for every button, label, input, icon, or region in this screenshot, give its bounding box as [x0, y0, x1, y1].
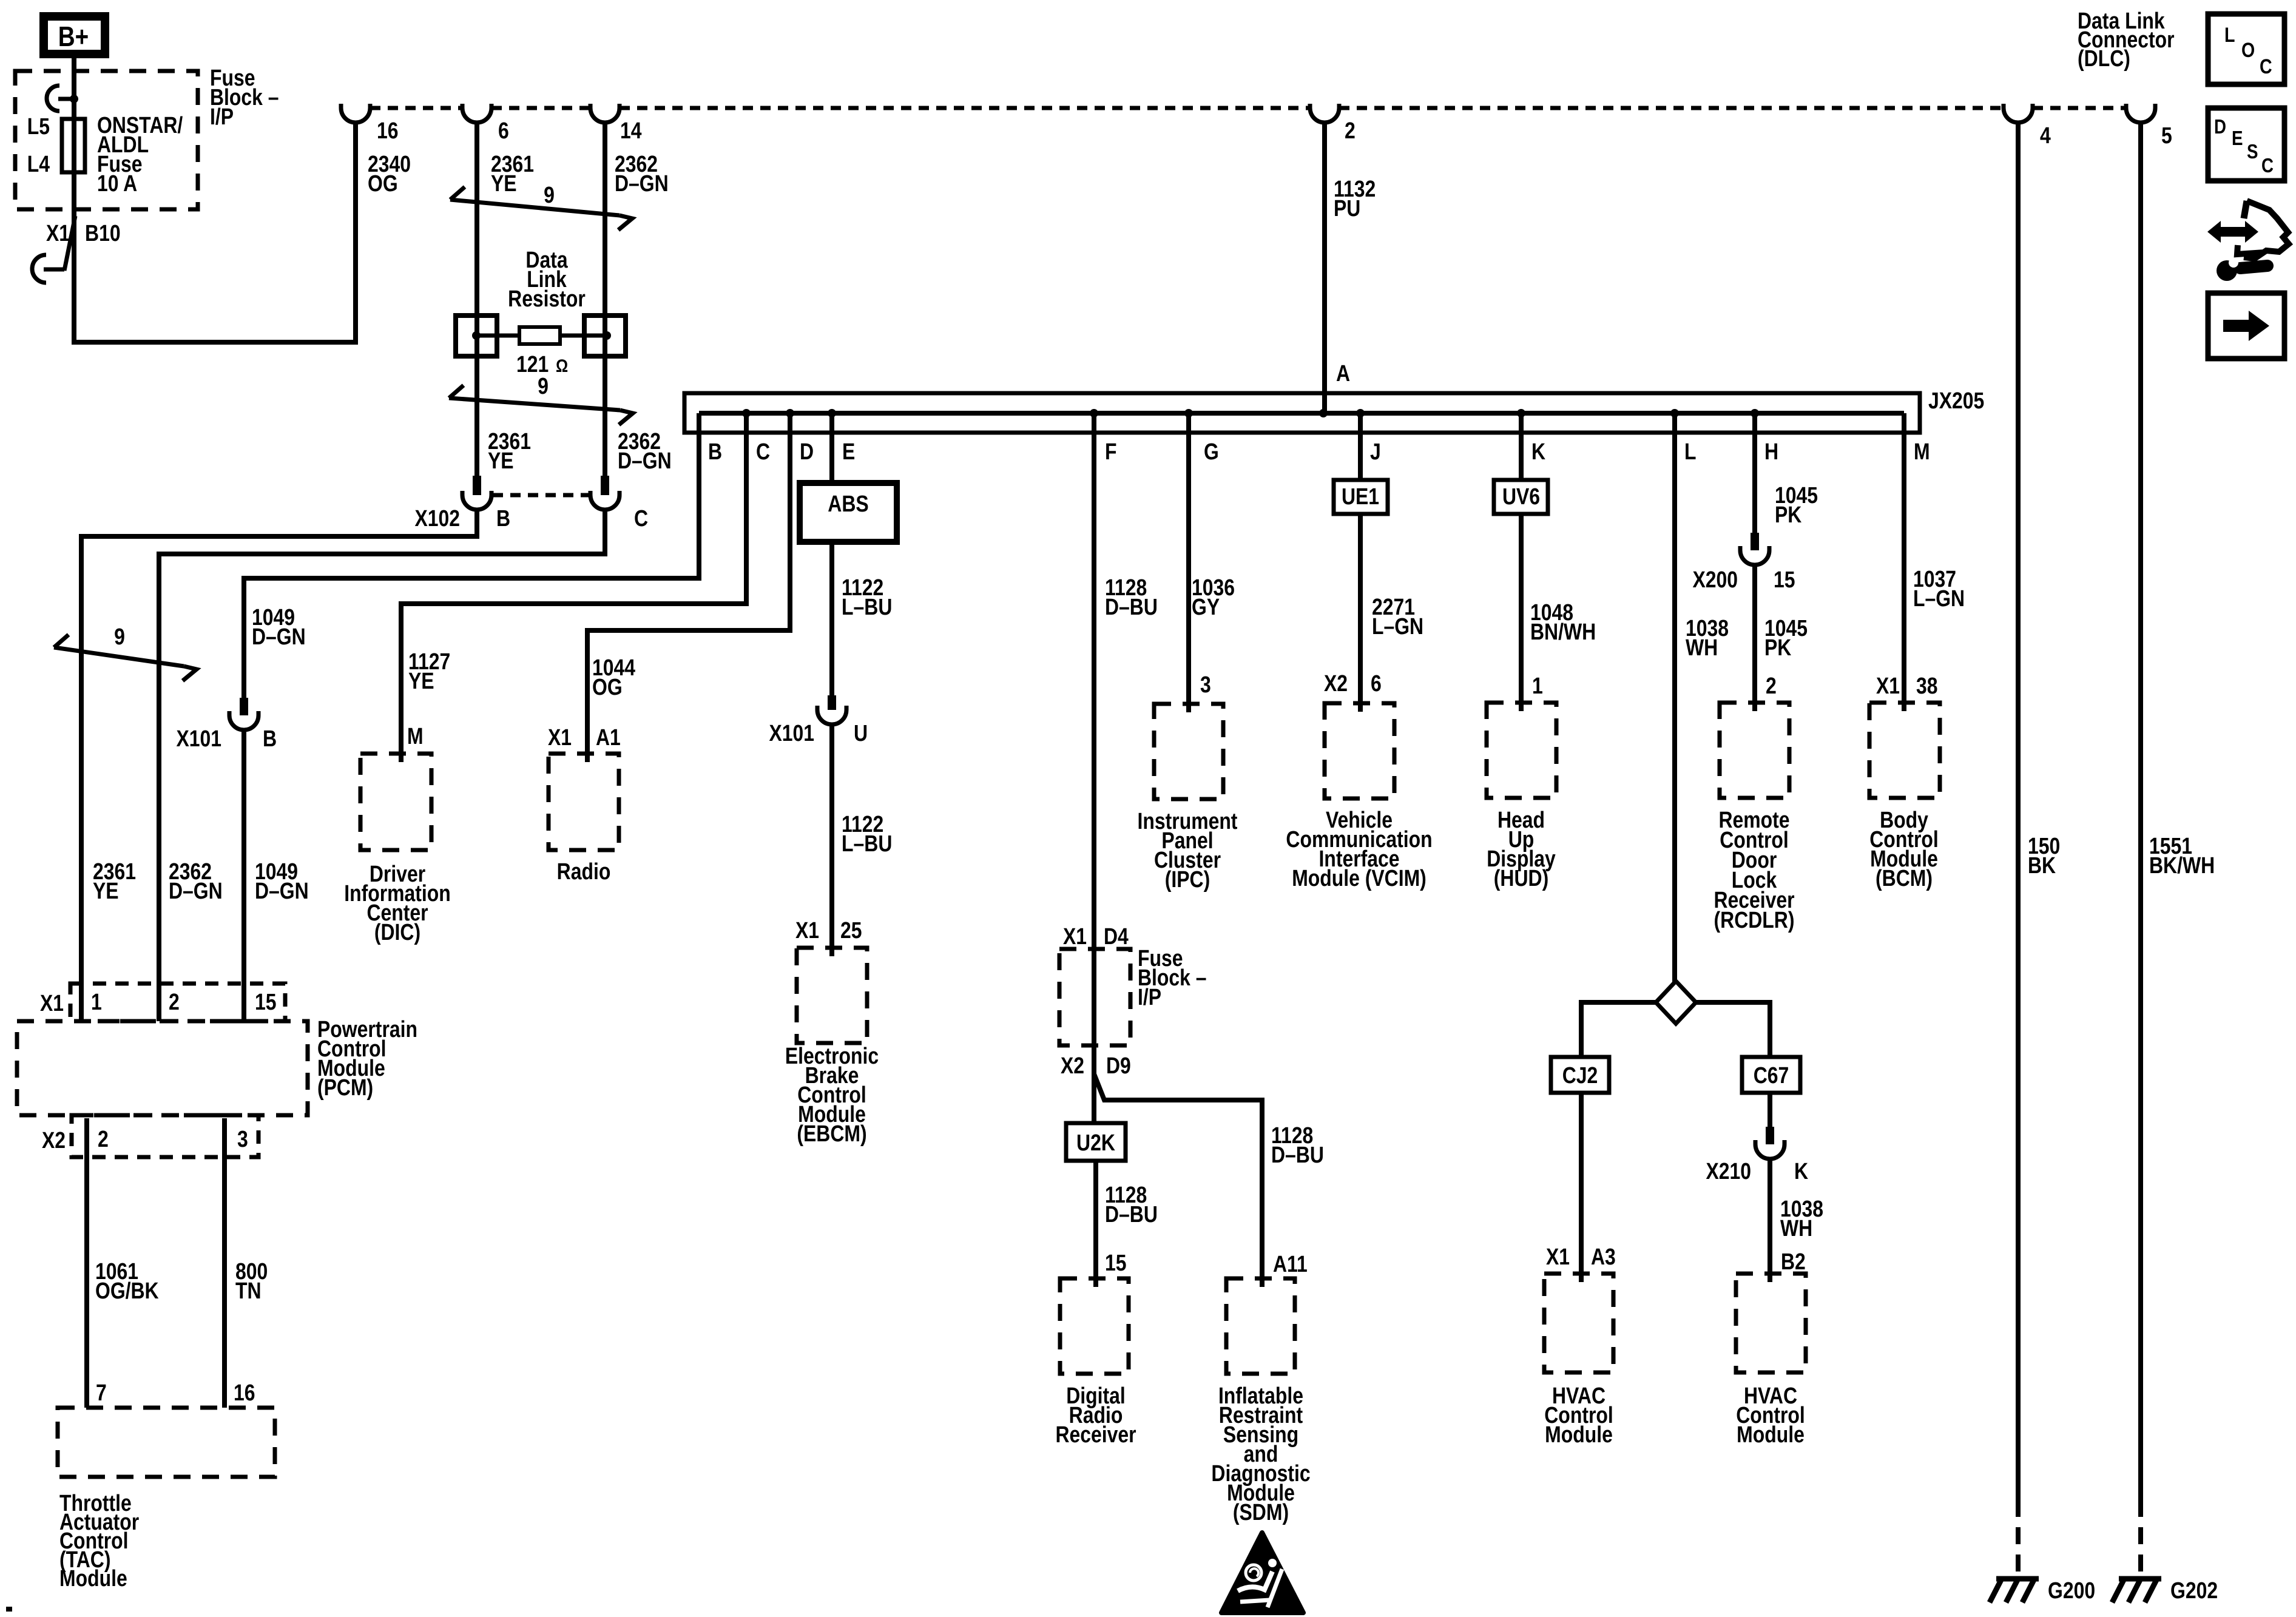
svg-text:D4: D4: [1104, 924, 1129, 950]
svg-text:B+: B+: [58, 21, 89, 52]
svg-text:(EBCM): (EBCM): [797, 1121, 866, 1147]
svg-text:L–GN: L–GN: [1913, 586, 1965, 612]
svg-text:A3: A3: [1591, 1244, 1616, 1270]
svg-text:PK: PK: [1775, 502, 1802, 528]
svg-text:Radio: Radio: [557, 859, 611, 885]
svg-text:X1: X1: [795, 918, 819, 944]
svg-text:9: 9: [114, 624, 125, 650]
svg-text:J: J: [1370, 439, 1381, 465]
svg-text:X101: X101: [177, 726, 222, 752]
svg-text:16: 16: [377, 118, 399, 144]
svg-text:L–BU: L–BU: [842, 595, 892, 620]
svg-text:B10: B10: [85, 221, 121, 246]
svg-text:C: C: [756, 439, 770, 465]
svg-text:D–BU: D–BU: [1271, 1143, 1324, 1168]
svg-text:OG: OG: [592, 675, 623, 700]
svg-text:15: 15: [1105, 1251, 1127, 1276]
svg-text:Module: Module: [1545, 1422, 1613, 1448]
svg-text:1: 1: [91, 990, 102, 1015]
svg-text:C67: C67: [1754, 1063, 1789, 1089]
svg-text:(DIC): (DIC): [374, 920, 420, 945]
svg-text:4: 4: [2040, 123, 2051, 149]
svg-text:(SDM): (SDM): [1233, 1500, 1289, 1525]
svg-text:(IPC): (IPC): [1165, 867, 1210, 893]
svg-text:25: 25: [840, 918, 862, 944]
svg-text:X2: X2: [1324, 671, 1348, 697]
svg-text:15: 15: [255, 990, 277, 1015]
svg-text:38: 38: [1916, 673, 1938, 699]
svg-text:(PCM): (PCM): [317, 1075, 373, 1101]
svg-text:9: 9: [544, 183, 555, 208]
svg-text:(RCDLR): (RCDLR): [1714, 908, 1795, 933]
svg-text:7: 7: [96, 1380, 107, 1406]
svg-text:B2: B2: [1781, 1249, 1806, 1275]
svg-text:D–GN: D–GN: [255, 879, 309, 904]
svg-text:Receiver: Receiver: [1055, 1422, 1136, 1448]
svg-text:D–BU: D–BU: [1105, 1202, 1158, 1227]
svg-text:X2: X2: [1061, 1053, 1084, 1079]
svg-text:PU: PU: [1334, 196, 1360, 221]
svg-text:2: 2: [169, 990, 180, 1015]
svg-text:D9: D9: [1106, 1053, 1131, 1079]
svg-text:U: U: [854, 721, 868, 746]
svg-text:YE: YE: [93, 879, 119, 904]
svg-text:L: L: [1684, 439, 1697, 465]
svg-text:L–GN: L–GN: [1372, 614, 1423, 640]
svg-text:X101: X101: [769, 721, 815, 746]
svg-text:D: D: [800, 439, 814, 465]
svg-text:Module: Module: [1737, 1422, 1805, 1448]
svg-text:2: 2: [1766, 673, 1777, 699]
svg-text:B: B: [708, 439, 722, 465]
svg-text:I/P: I/P: [1138, 985, 1161, 1010]
svg-text:C: C: [2260, 55, 2272, 78]
svg-text:YE: YE: [488, 448, 514, 474]
svg-text:TN: TN: [235, 1278, 262, 1304]
svg-text:K: K: [1794, 1159, 1809, 1184]
svg-text:S: S: [2247, 140, 2258, 163]
svg-text:BK: BK: [2028, 853, 2056, 879]
svg-text:X1: X1: [548, 725, 572, 751]
svg-text:Resistor: Resistor: [508, 286, 586, 312]
svg-text:10 A: 10 A: [97, 171, 137, 197]
svg-text:U2K: U2K: [1076, 1130, 1115, 1156]
svg-text:M: M: [1914, 439, 1930, 465]
svg-text:L–BU: L–BU: [842, 831, 892, 857]
svg-text:5: 5: [2161, 123, 2172, 149]
svg-text:X1: X1: [40, 991, 64, 1016]
svg-text:16: 16: [234, 1380, 255, 1406]
svg-text:H: H: [1764, 439, 1778, 465]
svg-text:K: K: [1531, 439, 1546, 465]
svg-text:F: F: [1105, 439, 1117, 465]
svg-text:3: 3: [237, 1127, 248, 1152]
svg-text:A: A: [1336, 361, 1350, 387]
svg-text:Ω: Ω: [556, 356, 568, 376]
svg-text:6: 6: [1371, 671, 1382, 697]
svg-text:BK/WH: BK/WH: [2149, 853, 2215, 879]
svg-text:BN/WH: BN/WH: [1530, 619, 1596, 645]
svg-text:GY: GY: [1192, 595, 1220, 620]
svg-text:D: D: [2214, 115, 2226, 138]
svg-text:X2: X2: [42, 1128, 66, 1153]
svg-text:D–GN: D–GN: [169, 879, 223, 904]
svg-text:B: B: [496, 506, 510, 532]
svg-text:I/P: I/P: [210, 104, 234, 130]
svg-text:OG/BK: OG/BK: [95, 1278, 159, 1304]
svg-text:O: O: [2241, 39, 2255, 62]
svg-text:UE1: UE1: [1342, 484, 1379, 510]
svg-text:YE: YE: [408, 669, 434, 694]
svg-text:A1: A1: [596, 725, 621, 751]
svg-text:D–BU: D–BU: [1105, 595, 1158, 620]
svg-text:PK: PK: [1764, 635, 1792, 661]
svg-text:A11: A11: [1273, 1252, 1308, 1277]
svg-text:C: C: [2261, 154, 2274, 177]
svg-text:UV6: UV6: [1502, 484, 1540, 510]
svg-text:6: 6: [498, 118, 509, 144]
svg-text:B: B: [263, 726, 277, 752]
svg-text:X200: X200: [1693, 567, 1738, 593]
svg-text:E: E: [842, 439, 855, 465]
svg-text:L5: L5: [27, 114, 50, 140]
svg-text:D–GN: D–GN: [615, 171, 669, 197]
svg-text:Module: Module: [59, 1566, 127, 1592]
svg-text:X1: X1: [46, 221, 70, 246]
svg-text:G200: G200: [2048, 1578, 2095, 1604]
svg-text:C: C: [634, 506, 648, 532]
svg-text:CJ2: CJ2: [1562, 1063, 1598, 1089]
svg-text:ABS: ABS: [828, 491, 868, 517]
svg-text:D–GN: D–GN: [252, 624, 306, 650]
svg-text:9: 9: [538, 374, 549, 399]
svg-text:1: 1: [1532, 673, 1543, 699]
svg-text:Module (VCIM): Module (VCIM): [1292, 866, 1427, 891]
svg-text:(DLC): (DLC): [2078, 46, 2130, 72]
svg-text:WH: WH: [1686, 635, 1718, 661]
svg-text:2: 2: [1345, 118, 1356, 144]
svg-text:15: 15: [1774, 567, 1795, 593]
svg-text:WH: WH: [1780, 1216, 1812, 1241]
svg-text:X102: X102: [415, 506, 461, 532]
svg-text:E: E: [2232, 127, 2243, 149]
svg-text:OG: OG: [368, 171, 398, 197]
svg-text:14: 14: [620, 118, 642, 144]
svg-text:L: L: [2224, 24, 2235, 47]
svg-text:G202: G202: [2170, 1578, 2218, 1604]
svg-text:X1: X1: [1876, 673, 1900, 699]
svg-text:X1: X1: [1063, 924, 1087, 950]
svg-text:2: 2: [98, 1127, 109, 1152]
svg-text:X210: X210: [1706, 1159, 1752, 1184]
svg-text:G: G: [1204, 439, 1219, 465]
svg-text:M: M: [407, 724, 424, 749]
svg-text:3: 3: [1200, 672, 1211, 698]
svg-text:YE: YE: [491, 171, 517, 197]
svg-text:JX205: JX205: [1928, 388, 1984, 414]
svg-text:(BCM): (BCM): [1876, 866, 1933, 891]
svg-text:X1: X1: [1546, 1244, 1570, 1270]
svg-text:(HUD): (HUD): [1494, 866, 1548, 891]
svg-text:L4: L4: [27, 152, 50, 177]
svg-text:D–GN: D–GN: [618, 448, 672, 474]
